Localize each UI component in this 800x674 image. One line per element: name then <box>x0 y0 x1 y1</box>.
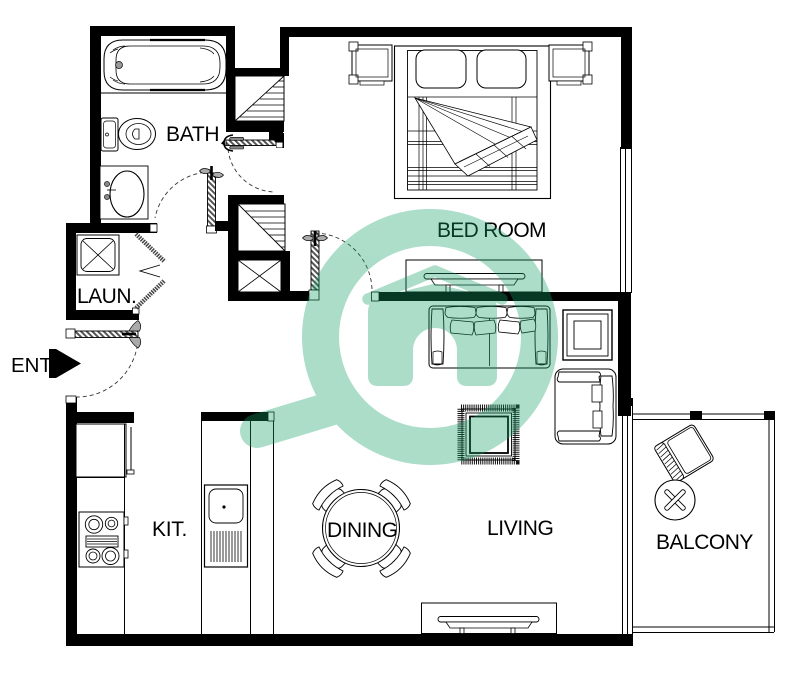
svg-text:DINING: DINING <box>327 519 398 542</box>
svg-text:ENT: ENT <box>11 354 52 377</box>
svg-text:LAUN.: LAUN. <box>77 285 136 308</box>
svg-text:KIT.: KIT. <box>152 518 187 541</box>
svg-text:BATH: BATH <box>166 123 219 146</box>
svg-text:LIVING: LIVING <box>487 517 553 540</box>
svg-text:BALCONY: BALCONY <box>656 531 753 554</box>
